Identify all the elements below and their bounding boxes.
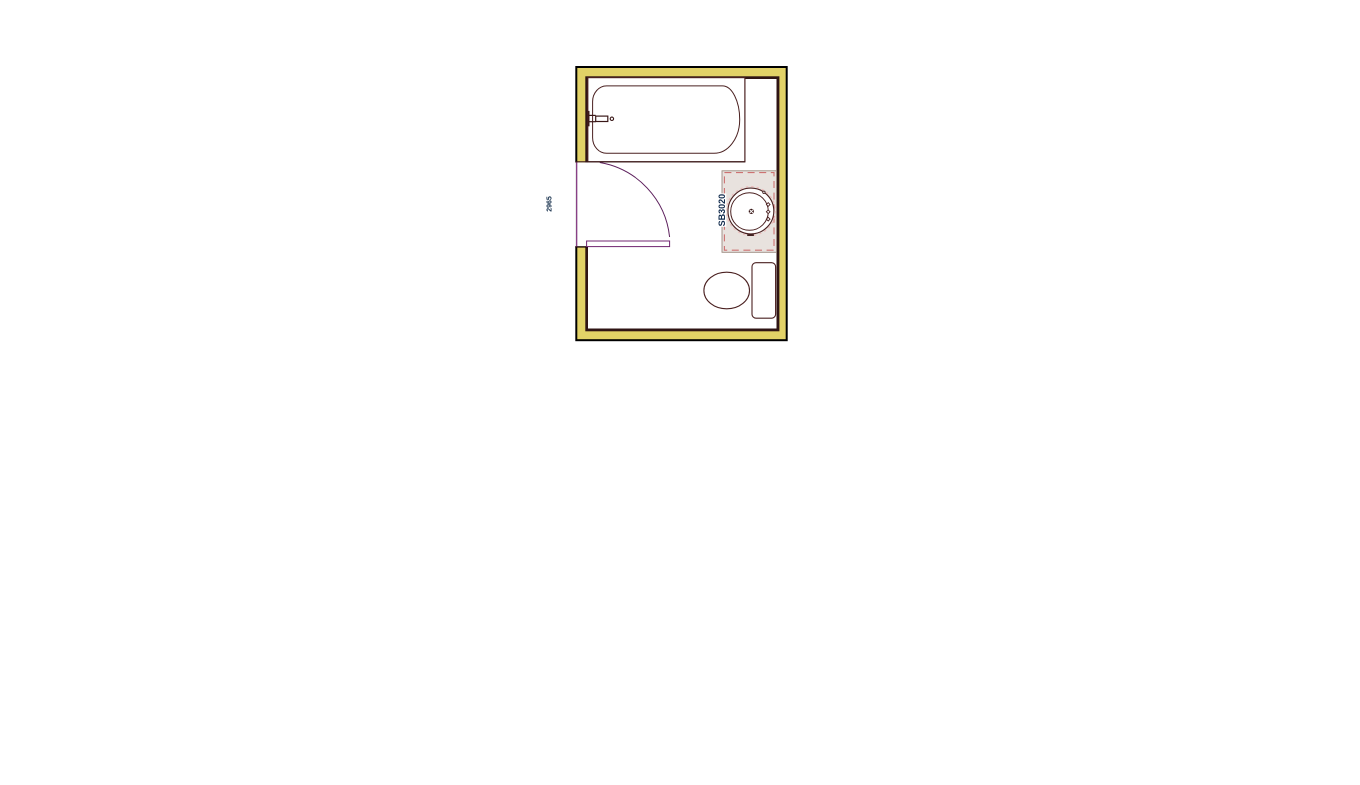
svg-text:SB3020: SB3020 [717, 194, 727, 227]
svg-text:2965: 2965 [546, 196, 553, 212]
